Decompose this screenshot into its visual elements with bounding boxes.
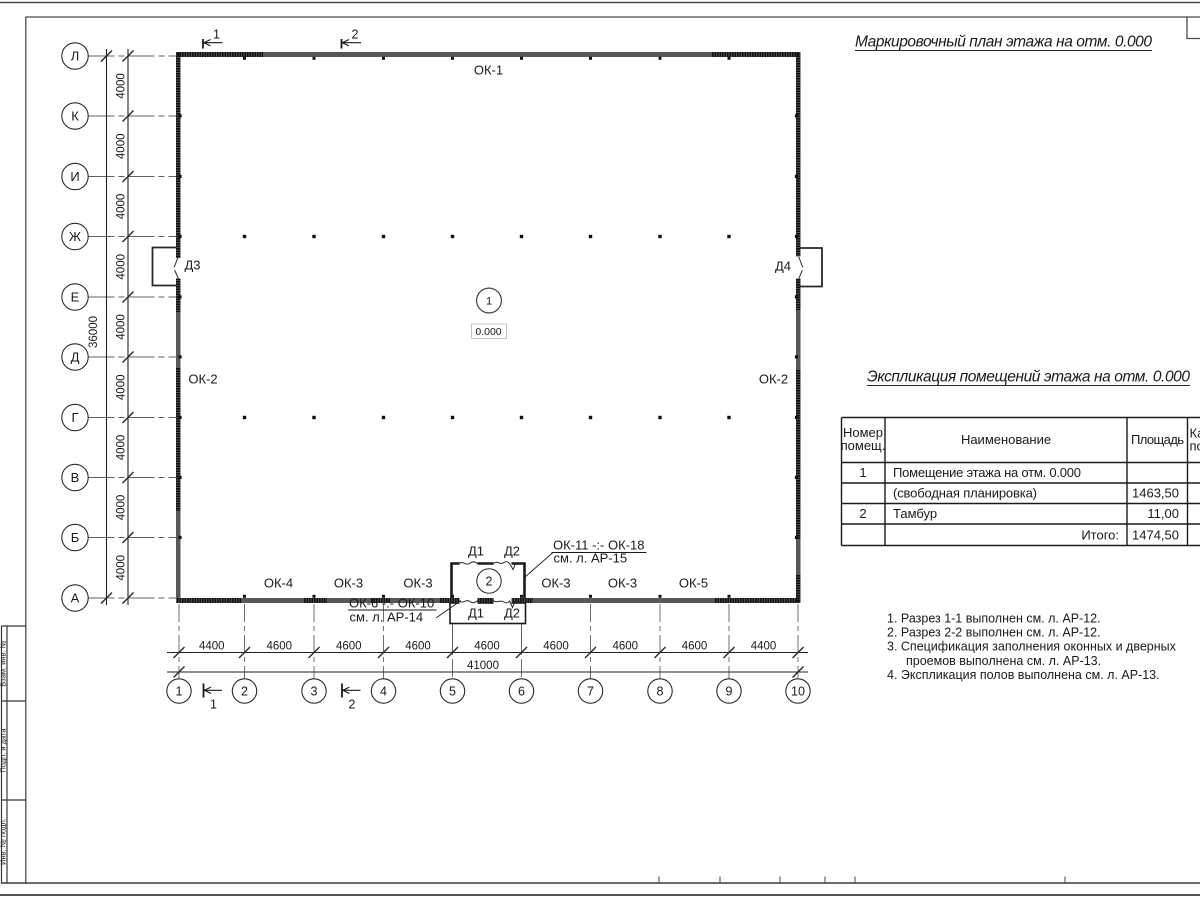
svg-text:ОК-3: ОК-3 [403, 576, 432, 591]
svg-text:(свободная планировка): (свободная планировка) [893, 486, 1037, 501]
svg-text:1: 1 [213, 28, 220, 42]
svg-text:Д: Д [71, 350, 80, 365]
svg-text:см. л. АР-15: см. л. АР-15 [554, 551, 628, 566]
svg-text:4600: 4600 [613, 641, 639, 653]
svg-text:1. Разрез 1-1 выполнен см. л.: 1. Разрез 1-1 выполнен см. л. АР-12. [887, 612, 1101, 626]
svg-text:4600: 4600 [405, 641, 431, 653]
svg-text:4000: 4000 [116, 375, 128, 401]
svg-text:2: 2 [241, 685, 248, 699]
svg-text:4600: 4600 [267, 641, 293, 653]
svg-text:Д4: Д4 [775, 259, 791, 274]
svg-text:2: 2 [349, 698, 356, 712]
svg-text:4000: 4000 [116, 435, 128, 461]
svg-text:Итого:: Итого: [1081, 528, 1119, 543]
svg-text:2: 2 [486, 575, 493, 589]
svg-text:4400: 4400 [751, 641, 777, 653]
svg-text:5: 5 [449, 685, 456, 699]
svg-text:Л: Л [71, 49, 80, 64]
svg-text:4600: 4600 [336, 641, 362, 653]
svg-text:ОК-3: ОК-3 [608, 576, 637, 591]
svg-text:проемов выполнена см. л. АР-13: проемов выполнена см. л. АР-13. [906, 654, 1101, 668]
svg-text:4000: 4000 [116, 73, 128, 99]
svg-text:11,00: 11,00 [1147, 506, 1179, 521]
svg-text:Маркировочный план этажа на от: Маркировочный план этажа на отм. 0.000 [855, 34, 1152, 51]
svg-text:по: по [1190, 439, 1200, 454]
svg-text:4000: 4000 [116, 314, 128, 340]
svg-text:4000: 4000 [116, 194, 128, 220]
svg-text:3. Спецификация заполнения око: 3. Спецификация заполнения оконных и две… [887, 640, 1177, 654]
svg-text:4000: 4000 [116, 254, 128, 280]
svg-text:4400: 4400 [199, 641, 225, 653]
svg-text:Д1: Д1 [468, 544, 484, 559]
svg-text:Подп. и дата: Подп. и дата [0, 728, 8, 773]
svg-text:Тамбур: Тамбур [893, 506, 937, 521]
svg-text:ОК-3: ОК-3 [334, 576, 363, 591]
svg-text:Д2: Д2 [504, 544, 520, 559]
svg-text:1: 1 [210, 698, 217, 712]
svg-text:ОК-4: ОК-4 [264, 576, 293, 591]
svg-text:6: 6 [518, 685, 525, 699]
svg-text:Ж: Ж [69, 229, 81, 244]
svg-text:4. Экспликация полов выполнена: 4. Экспликация полов выполнена см. л. АР… [887, 668, 1160, 682]
svg-text:10: 10 [791, 685, 805, 699]
svg-text:Экспликация помещений этажа на: Экспликация помещений этажа на отм. 0.00… [867, 369, 1190, 386]
svg-text:4600: 4600 [543, 641, 569, 653]
svg-text:41000: 41000 [467, 660, 499, 672]
svg-text:1474,50: 1474,50 [1132, 528, 1179, 543]
svg-text:Г: Г [71, 410, 78, 425]
svg-text:9: 9 [726, 685, 733, 699]
svg-text:2: 2 [859, 506, 866, 521]
svg-text:36000: 36000 [88, 316, 100, 348]
svg-text:3: 3 [311, 685, 318, 699]
svg-text:ОК-2: ОК-2 [188, 372, 217, 387]
svg-text:8: 8 [657, 685, 664, 699]
svg-text:2: 2 [352, 28, 359, 42]
svg-text:Д2: Д2 [504, 606, 520, 621]
svg-text:7: 7 [587, 685, 594, 699]
svg-text:4: 4 [380, 685, 387, 699]
svg-text:ОК-3: ОК-3 [541, 576, 570, 591]
svg-text:ОК-2: ОК-2 [759, 372, 788, 387]
svg-text:Взам. инв. №: Взам. инв. № [0, 640, 8, 686]
svg-text:0.000: 0.000 [475, 326, 501, 338]
svg-text:Д1: Д1 [468, 606, 484, 621]
svg-text:4600: 4600 [474, 641, 500, 653]
svg-text:Инв. № подл.: Инв. № подл. [0, 818, 8, 865]
svg-text:см. л. АР-14: см. л. АР-14 [350, 610, 424, 625]
svg-text:Площадь: Площадь [1131, 432, 1184, 447]
svg-text:Помещение этажа на отм. 0.000: Помещение этажа на отм. 0.000 [893, 465, 1081, 480]
svg-text:Наименование: Наименование [961, 432, 1051, 447]
svg-text:Д3: Д3 [184, 258, 200, 273]
svg-text:2. Разрез 2-2 выполнен см. л.: 2. Разрез 2-2 выполнен см. л. АР-12. [887, 626, 1101, 640]
svg-text:Е: Е [71, 290, 80, 305]
svg-text:1: 1 [486, 296, 492, 308]
svg-text:1: 1 [176, 685, 183, 699]
svg-text:4600: 4600 [682, 641, 708, 653]
svg-text:Б: Б [71, 530, 80, 545]
svg-text:ОК-5: ОК-5 [679, 576, 708, 591]
svg-text:1: 1 [859, 465, 866, 480]
svg-text:К: К [71, 109, 79, 124]
svg-text:4000: 4000 [116, 495, 128, 521]
svg-text:помещ.: помещ. [841, 438, 886, 453]
svg-text:4000: 4000 [116, 134, 128, 160]
svg-text:В: В [71, 470, 80, 485]
svg-text:А: А [71, 591, 80, 606]
svg-text:ОК-6 -:- ОК-10: ОК-6 -:- ОК-10 [349, 596, 434, 611]
svg-text:ОК-1: ОК-1 [474, 63, 503, 78]
svg-text:4000: 4000 [116, 555, 128, 581]
svg-text:1463,50: 1463,50 [1132, 486, 1179, 501]
svg-text:И: И [70, 169, 79, 184]
